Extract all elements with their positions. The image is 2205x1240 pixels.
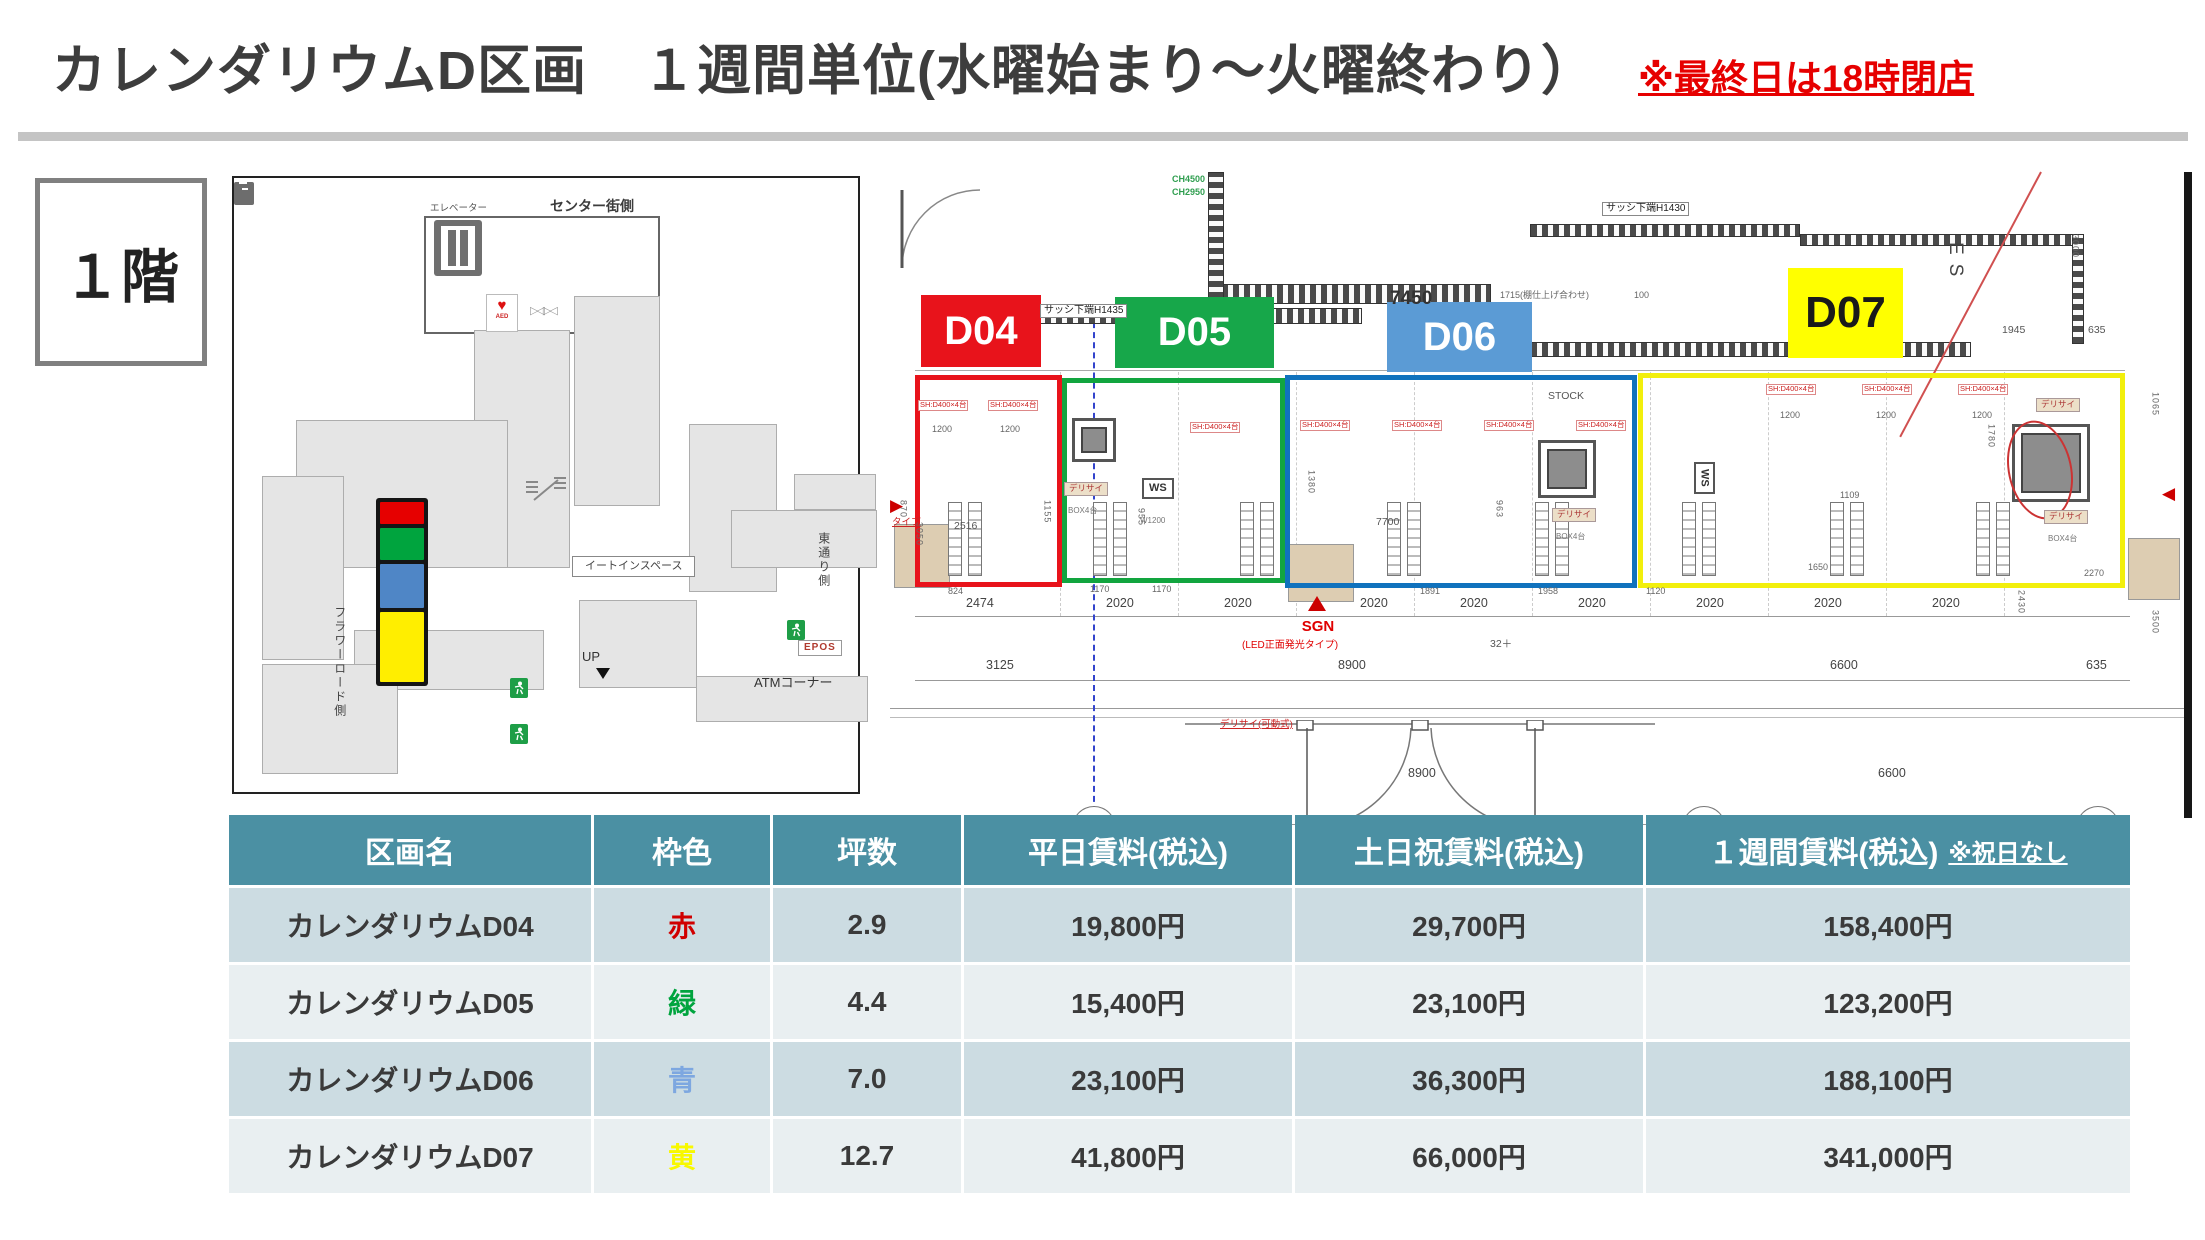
red-arrow-right: ◀	[2162, 484, 2175, 504]
column-header: 土日祝賃料(税込)	[1295, 815, 1643, 885]
header-divider	[18, 132, 2188, 141]
floor-badge: １階	[35, 178, 207, 366]
plan-annotation: 6600	[1878, 766, 1906, 780]
plan-annotation: 1120	[1646, 586, 1665, 596]
plan-annotation: SH:D400×4台	[1862, 384, 1912, 395]
plan-annotation: 1380	[1306, 470, 1316, 494]
cell-frame-color: 黄	[594, 1119, 770, 1193]
plan-annotation: SH:D400×4台	[1300, 420, 1350, 431]
plan-annotation: 3125	[986, 658, 1014, 672]
map-annotation: イートインスペース	[572, 556, 695, 577]
plan-annotation: 1200	[1780, 410, 1800, 420]
plan-annotation: 3000	[2070, 234, 2080, 258]
plan-annotation: 2020	[1814, 596, 1842, 610]
map-block	[731, 510, 877, 568]
map-annotation: 東通り側	[816, 532, 830, 588]
map-block	[794, 474, 876, 510]
plan-annotation: 1715(棚仕上げ合わせ)	[1500, 290, 1589, 300]
stack-zone-d07	[380, 612, 424, 682]
plan-right-border	[2184, 172, 2192, 818]
plan-annotation: 824	[948, 586, 963, 596]
plan-dim-line	[915, 680, 2130, 681]
map-annotation: センター街側	[550, 198, 634, 214]
plan-annotation: 1945	[2002, 324, 2025, 336]
exit-icon	[787, 620, 805, 640]
plan-annotation: SH:D400×4台	[1576, 420, 1626, 431]
cell-week-rate: 341,000円	[1646, 1119, 2130, 1193]
zone-label-d04: D04	[921, 295, 1041, 367]
column-header: 坪数	[773, 815, 961, 885]
sign-pointer-icon	[1308, 596, 1326, 611]
plan-annotation: (LED正面発光タイプ)	[1242, 640, 1338, 652]
plan-annotation: 2474	[966, 596, 994, 610]
cell-week-rate: 158,400円	[1646, 888, 2130, 962]
exit-icon	[510, 724, 528, 744]
door-arc	[892, 180, 987, 275]
plan-annotation: 2020	[1578, 596, 1606, 610]
wall-hatch	[1800, 234, 2080, 246]
cell-frame-color: 緑	[594, 965, 770, 1039]
plan-annotation: WS	[1694, 462, 1715, 494]
plan-annotation: SH:D400×4台	[918, 400, 968, 411]
map-annotation: ATMコーナー	[754, 676, 832, 691]
zone-outline-d06	[1285, 375, 1637, 588]
table-row-d04: カレンダリウムD04赤2.919,800円29,700円158,400円	[229, 888, 2130, 962]
cell-tsubo: 2.9	[773, 888, 961, 962]
floor-plan-drawing: ▶ ◀ D04D05D06D07 7450サッシ下端H1435サッシ下端H143…	[890, 172, 2192, 818]
plan-annotation: 2020	[1460, 596, 1488, 610]
plan-annotation: 2516	[954, 520, 977, 532]
plan-annotation: CH2950	[1172, 187, 1205, 197]
plan-annotation: デリサイ	[2036, 398, 2080, 412]
cell-tsubo: 7.0	[773, 1042, 961, 1116]
plan-annotation: 1109	[1840, 490, 1859, 500]
stack-zone-d04	[380, 502, 424, 524]
cell-weekend-rate: 36,300円	[1295, 1042, 1643, 1116]
cell-weekday-rate: 41,800円	[964, 1119, 1292, 1193]
plan-annotation: 2020	[1696, 596, 1724, 610]
price-table: 区画名枠色坪数平日賃料(税込)土日祝賃料(税込)１週間賃料(税込)※祝日なし カ…	[229, 815, 2130, 1196]
plan-annotation: BOX4台	[1068, 506, 1097, 515]
up-arrow-icon	[596, 668, 610, 679]
plan-annotation: 1155	[1042, 500, 1052, 523]
column-header: 区画名	[229, 815, 591, 885]
cell-name: カレンダリウムD05	[229, 965, 591, 1039]
zone-color-stack	[376, 498, 428, 686]
price-table-body: カレンダリウムD04赤2.919,800円29,700円158,400円カレンダ…	[229, 888, 2130, 1193]
price-table-header: 区画名枠色坪数平日賃料(税込)土日祝賃料(税込)１週間賃料(税込)※祝日なし	[229, 815, 2130, 885]
zone-label-d05: D05	[1115, 297, 1274, 368]
map-annotation: フラワーロード側	[332, 606, 346, 718]
plan-annotation: 2430	[2016, 590, 2026, 614]
slide-page: カレンダリウムD区画 １週間単位(水曜始まり～火曜終わり） ※最終日は18時閉店…	[0, 0, 2205, 1240]
plan-annotation: 963	[1494, 500, 1504, 518]
plan-annotation: デリサイ(可動式)	[1220, 720, 1293, 731]
plan-annotation: ES	[1944, 242, 1966, 285]
cell-weekend-rate: 66,000円	[1295, 1119, 1643, 1193]
plan-annotation: サッシ下端H1435	[1040, 304, 1127, 318]
elevator-icon	[434, 220, 482, 276]
table-row-d06: カレンダリウムD06青7.023,100円36,300円188,100円	[229, 1042, 2130, 1116]
plan-dim-line	[915, 616, 2130, 617]
cell-tsubo: 12.7	[773, 1119, 961, 1193]
plan-annotation: SH:D400×4台	[988, 400, 1038, 411]
cell-weekend-rate: 23,100円	[1295, 965, 1643, 1039]
cell-weekday-rate: 15,400円	[964, 965, 1292, 1039]
plan-annotation: 1958	[1538, 586, 1558, 596]
plan-annotation: 8900	[1408, 766, 1436, 780]
plan-annotation: 1891	[1420, 586, 1440, 596]
plan-annotation: 1780	[1986, 424, 1996, 448]
plan-annotation: BOX4台	[1556, 532, 1585, 541]
escalator-icon	[234, 182, 254, 205]
cell-weekday-rate: 19,800円	[964, 888, 1292, 962]
cell-week-rate: 123,200円	[1646, 965, 2130, 1039]
map-annotation: EPOS	[798, 640, 842, 656]
closing-time-note: ※最終日は18時閉店	[1638, 48, 1974, 102]
column-header: 枠色	[594, 815, 770, 885]
cell-name: カレンダリウムD07	[229, 1119, 591, 1193]
map-annotation: UP	[582, 650, 600, 665]
plan-annotation: 100	[1634, 290, 1649, 300]
plan-annotation: デリサイ	[1552, 508, 1596, 522]
plan-annotation: WS	[1142, 478, 1174, 499]
plan-annotation: 6600	[1830, 658, 1858, 672]
plan-annotation: SH:D400×4台	[1392, 420, 1442, 431]
wall-hatch	[1530, 224, 1800, 237]
cell-frame-color: 青	[594, 1042, 770, 1116]
plan-annotation: 635	[2088, 324, 2106, 336]
plan-annotation: 8900	[1338, 658, 1366, 672]
cell-weekday-rate: 23,100円	[964, 1042, 1292, 1116]
plan-annotation: デリサイ	[1064, 482, 1108, 496]
plan-annotation: 870	[898, 500, 908, 518]
stairs-icon	[524, 474, 568, 508]
plan-annotation: 1200	[1972, 410, 1992, 420]
floor-map-overview: ♥AED ▷◁▷◁ センター街側エレベーターUPイートインスペースATMコーナー…	[232, 176, 860, 794]
page-title: カレンダリウムD区画 １週間単位(水曜始まり～火曜終わり）	[52, 26, 1596, 105]
wall-hatch	[1530, 342, 1971, 357]
cell-name: カレンダリウムD06	[229, 1042, 591, 1116]
plan-annotation: SH:D400×4台	[1766, 384, 1816, 395]
plan-annotation: 2020	[1224, 596, 1252, 610]
cell-name: カレンダリウムD04	[229, 888, 591, 962]
exit-icon	[510, 678, 528, 698]
plan-annotation: タイプ	[892, 518, 921, 529]
plan-annotation: CH4500	[1172, 174, 1205, 184]
column-header: １週間賃料(税込)※祝日なし	[1646, 815, 2130, 885]
plan-annotation: SH:D400×4台	[1190, 422, 1240, 433]
plan-annotation: 1065	[2150, 392, 2160, 416]
cell-weekend-rate: 29,700円	[1295, 888, 1643, 962]
map-annotation: エレベーター	[430, 204, 487, 215]
fixture-box	[2128, 538, 2180, 600]
cell-frame-color: 赤	[594, 888, 770, 962]
plan-annotation: 635	[2086, 658, 2107, 672]
plan-annotation: 1650	[1808, 562, 1828, 572]
aed-icon: ♥AED	[486, 294, 518, 332]
plan-annotation: SGN	[1288, 618, 1348, 635]
plan-annotation: 1200	[932, 424, 952, 434]
wall-hatch	[1208, 172, 1224, 310]
door-symbol-icon: ▷◁▷◁	[530, 304, 556, 317]
plan-annotation: 3500	[2150, 610, 2160, 634]
cell-week-rate: 188,100円	[1646, 1042, 2130, 1116]
plan-annotation: 1170	[1090, 584, 1109, 594]
stack-zone-d05	[380, 528, 424, 560]
zone-label-d07: D07	[1788, 268, 1903, 358]
plan-annotation: サッシ下端H1430	[1602, 202, 1689, 216]
plan-storefront-line	[890, 708, 2184, 709]
column-header: 平日賃料(税込)	[964, 815, 1292, 885]
plan-annotation: SH:D400×4台	[1958, 384, 2008, 395]
plan-annotation: 2020	[1932, 596, 1960, 610]
header-holiday-note: ※祝日なし	[1948, 833, 2067, 868]
plan-annotation: 1170	[1152, 584, 1171, 594]
plan-annotation: STOCK	[1548, 390, 1584, 402]
plan-annotation: 7700	[1376, 516, 1399, 528]
table-row-d05: カレンダリウムD05緑4.415,400円23,100円123,200円	[229, 965, 2130, 1039]
plan-annotation: 2020	[1360, 596, 1388, 610]
zone-label-d06: D06	[1387, 302, 1532, 372]
plan-annotation: 2020	[1106, 596, 1134, 610]
plan-annotation: 1200	[1000, 424, 1020, 434]
cell-tsubo: 4.4	[773, 965, 961, 1039]
plan-annotation: 1200	[1876, 410, 1896, 420]
table-row-d07: カレンダリウムD07黄12.741,800円66,000円341,000円	[229, 1119, 2130, 1193]
plan-storefront-line	[890, 717, 2184, 718]
map-block	[574, 296, 660, 506]
plan-annotation: 955	[1136, 508, 1146, 526]
plan-annotation: デリサイ	[2044, 510, 2088, 524]
plan-annotation: 2270	[2084, 568, 2104, 578]
plan-annotation: 32＋	[1490, 638, 1512, 650]
plan-annotation: SH:D400×4台	[1484, 420, 1534, 431]
stack-zone-d06	[380, 564, 424, 608]
plan-annotation: BOX4台	[2048, 534, 2077, 543]
plan-annotation: 7450	[1390, 288, 1432, 310]
